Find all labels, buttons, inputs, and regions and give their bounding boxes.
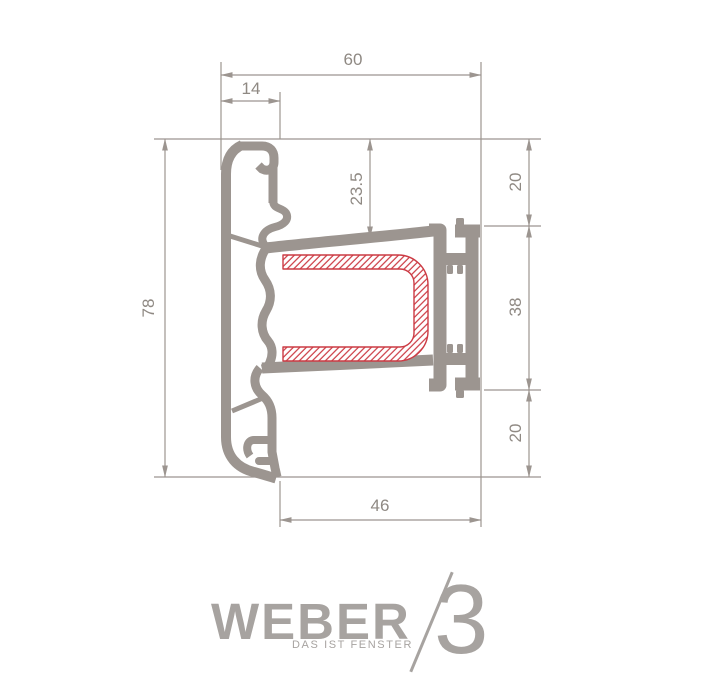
dim-label-right-bottom: 20 [507, 411, 525, 455]
cover-profile-outline [226, 145, 287, 479]
rail-profile-outline [445, 231, 480, 384]
rail-clip-teeth [447, 218, 464, 398]
extension-lines [154, 62, 541, 527]
logo-tagline: DAS IST FENSTER [243, 639, 413, 651]
dim-label-bottom-width: 46 [358, 497, 402, 515]
logo-series: 3 [434, 570, 489, 668]
dim-label-sash-depth: 23.5 [348, 167, 366, 211]
dim-label-height: 78 [140, 286, 158, 330]
dim-label-cover-width: 14 [229, 80, 273, 98]
dim-label-right-top: 20 [507, 160, 525, 204]
insulation-hatch [283, 255, 428, 361]
dim-label-right-middle: 38 [507, 285, 525, 329]
drawing-canvas: 60 14 23.5 78 20 38 20 46 WEBER DAS IST … [0, 0, 701, 700]
dim-label-top-width: 60 [331, 51, 375, 69]
